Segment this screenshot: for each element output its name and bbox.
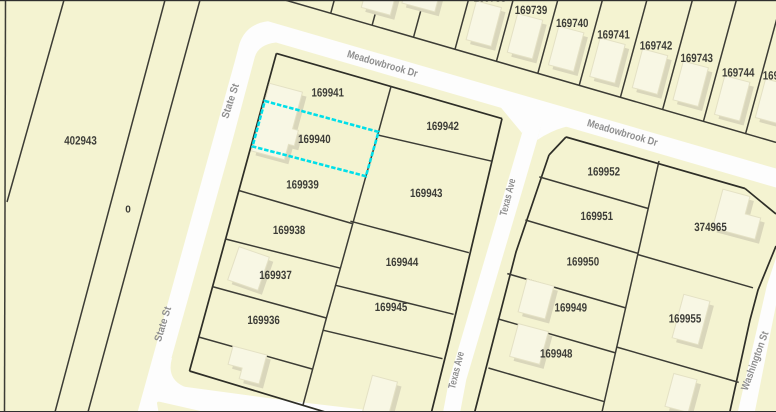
svg-text:169741: 169741 (597, 28, 630, 42)
svg-text:169742: 169742 (640, 39, 673, 53)
svg-text:169940: 169940 (298, 132, 331, 146)
svg-text:169740: 169740 (556, 16, 589, 30)
svg-text:169744: 169744 (722, 65, 755, 79)
svg-text:169943: 169943 (410, 186, 443, 200)
svg-text:169949: 169949 (555, 300, 588, 314)
svg-text:374965: 374965 (694, 220, 727, 234)
svg-text:169948: 169948 (540, 346, 573, 360)
svg-text:169952: 169952 (588, 165, 621, 179)
svg-text:169739: 169739 (515, 3, 548, 17)
svg-text:169955: 169955 (669, 312, 702, 326)
svg-text:169936: 169936 (247, 313, 280, 327)
svg-text:169942: 169942 (426, 119, 459, 133)
svg-text:0: 0 (125, 205, 131, 216)
svg-text:169944: 169944 (386, 255, 419, 269)
svg-text:169941: 169941 (311, 85, 344, 99)
svg-text:402943: 402943 (64, 134, 97, 148)
svg-text:169937: 169937 (259, 268, 292, 282)
svg-text:169745: 169745 (763, 69, 776, 83)
svg-text:169939: 169939 (286, 178, 319, 192)
svg-text:169945: 169945 (375, 300, 408, 314)
svg-text:169950: 169950 (567, 255, 600, 269)
svg-text:169938: 169938 (273, 223, 306, 237)
svg-text:169951: 169951 (581, 209, 614, 223)
svg-text:169743: 169743 (680, 51, 713, 65)
